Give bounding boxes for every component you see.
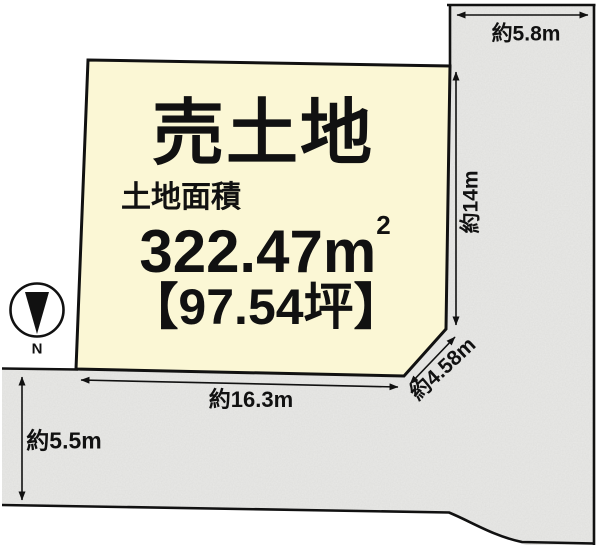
north-label: N	[32, 342, 43, 357]
dim-label-top-road: 約5.8m	[492, 24, 561, 45]
land-area-label: 土地面積	[121, 183, 241, 213]
north-compass	[11, 284, 64, 337]
plot-title: 売土地	[152, 98, 374, 170]
land-plot-diagram: 売土地 土地面積 322.47m2 【97.54坪】 約5.8m 約14m 約4…	[0, 0, 600, 545]
tsubo-area-value: 【97.54坪】	[128, 282, 403, 332]
dim-label-left-road: 約5.5m	[26, 430, 101, 453]
land-area-number: 322.47m	[139, 218, 376, 285]
dim-label-bottom-frontage: 約16.3m	[209, 389, 293, 411]
land-area-value: 322.47m2	[139, 212, 390, 282]
dim-label-right-frontage: 約14m	[461, 170, 482, 233]
square-meter-superscript: 2	[376, 210, 390, 240]
